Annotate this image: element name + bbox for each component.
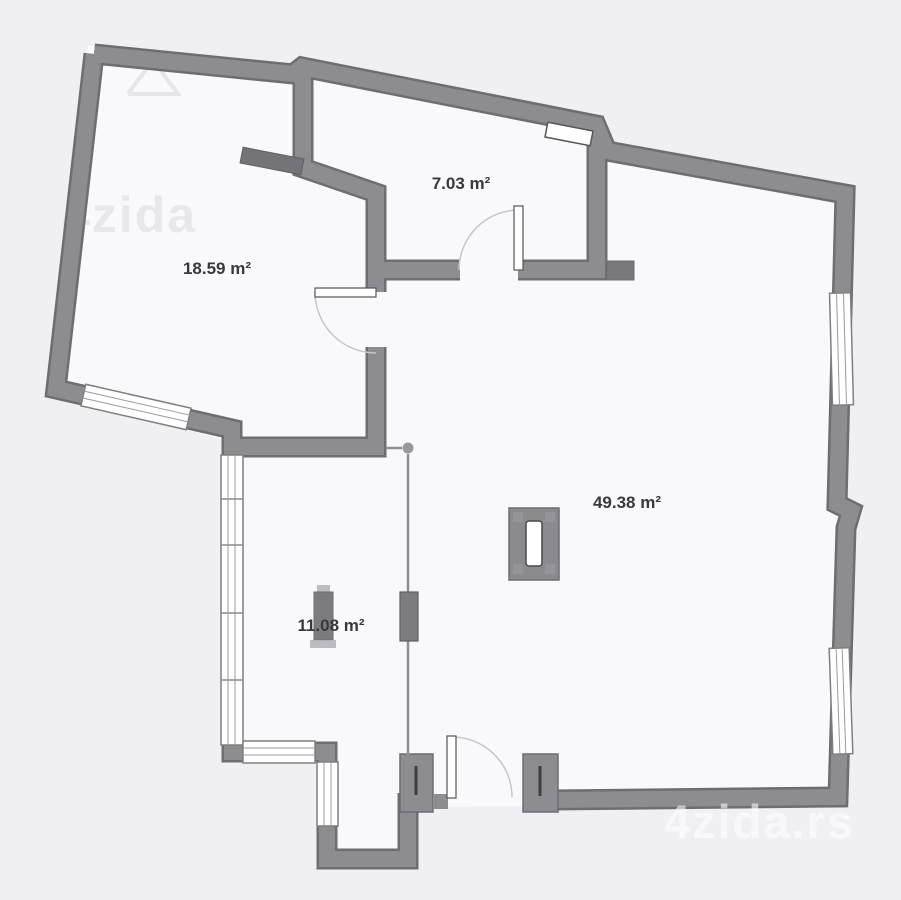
window-terrace-left xyxy=(221,455,243,745)
room-area-label: 7.03 m² xyxy=(432,174,491,193)
room-area-label: 18.59 m² xyxy=(183,259,251,278)
partial-wall-stub-right xyxy=(607,261,634,280)
window-terrace-bottom xyxy=(243,741,315,763)
floor-plan-canvas: 4zida xyxy=(0,0,901,900)
sliding-panel xyxy=(400,592,418,641)
partition-pivot-dot xyxy=(403,443,414,454)
watermark-bottom-text: 4zida.rs xyxy=(664,795,855,848)
room-area-label: 49.38 m² xyxy=(593,493,661,512)
room-area-label: 11.08 m² xyxy=(297,616,364,635)
door-leaf xyxy=(315,288,376,297)
window-right-upper xyxy=(830,293,854,406)
chimney-flue-slot xyxy=(526,521,542,566)
chimney-block xyxy=(509,508,559,580)
door-leaf xyxy=(514,206,523,270)
door-leaf xyxy=(447,736,456,798)
window-right-lower xyxy=(829,648,853,755)
door-threshold-stub xyxy=(433,794,448,809)
window-bay-left xyxy=(317,762,338,826)
floor-plan: 4zida xyxy=(0,0,901,900)
